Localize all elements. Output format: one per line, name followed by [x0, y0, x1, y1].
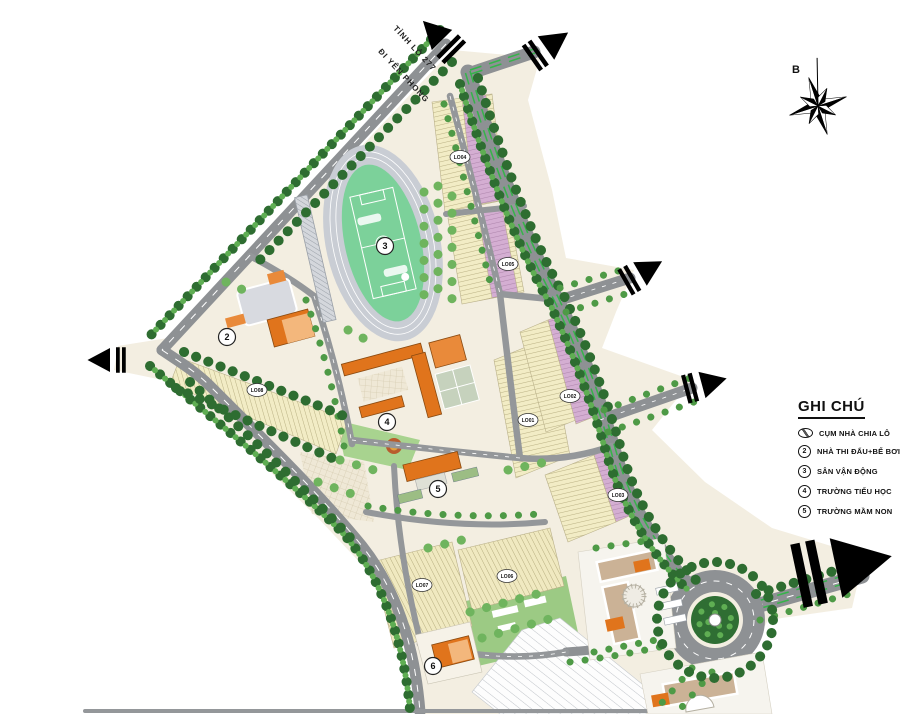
- legend-item-primary-school: 4 TRƯỜNG TIỂU HỌC: [798, 485, 906, 498]
- compass-rose: [775, 53, 856, 144]
- svg-text:LO08: LO08: [251, 388, 264, 394]
- facility-marker-6: 6: [425, 658, 442, 675]
- site-plan-page: LO04 LO05 LO08 LO01 LO02 LO03 LO07 LO06 …: [0, 0, 906, 714]
- svg-text:LO07: LO07: [416, 583, 429, 589]
- legend-symbol-2: 2: [798, 445, 811, 458]
- svg-text:LO03: LO03: [612, 493, 625, 499]
- legend-item-sports-hall: 2 NHÀ THI ĐẤU+BỂ BƠI: [798, 445, 906, 458]
- lot-label: LO06: [497, 570, 517, 583]
- lot-label: LO08: [247, 384, 267, 397]
- legend-symbol-3: 3: [798, 465, 811, 478]
- facility-marker-5: 5: [430, 481, 447, 498]
- svg-text:LO06: LO06: [501, 574, 514, 580]
- svg-text:3: 3: [382, 241, 387, 251]
- north-label: B: [792, 64, 800, 76]
- lot-oval-symbol: [798, 428, 813, 438]
- svg-text:6: 6: [430, 661, 435, 671]
- legend-item-kindergarten: 5 TRƯỜNG MẦM NON: [798, 505, 906, 518]
- legend: GHI CHÚ CỤM NHÀ CHIA LÔ 2 NHÀ THI ĐẤU+BỂ…: [790, 398, 906, 525]
- site-plan-svg: LO04 LO05 LO08 LO01 LO02 LO03 LO07 LO06 …: [0, 0, 906, 714]
- lot-label: LO07: [412, 579, 432, 592]
- svg-text:4: 4: [384, 417, 389, 427]
- svg-text:LO01: LO01: [522, 418, 535, 424]
- legend-symbol-4: 4: [798, 485, 811, 498]
- legend-item-stadium: 3 SÂN VẬN ĐỘNG: [798, 465, 906, 478]
- svg-text:LO05: LO05: [502, 262, 515, 268]
- lot-label: LO03: [608, 489, 628, 502]
- legend-item-lots: CỤM NHÀ CHIA LÔ: [798, 428, 906, 438]
- legend-symbol-5: 5: [798, 505, 811, 518]
- lot-label: LO02: [560, 390, 580, 403]
- svg-text:5: 5: [435, 484, 440, 494]
- facility-marker-2: 2: [219, 329, 236, 346]
- svg-text:LO02: LO02: [564, 394, 577, 400]
- facility-marker-4: 4: [379, 414, 396, 431]
- lot-label: LO05: [498, 258, 518, 271]
- facility-marker-3: 3: [377, 238, 394, 255]
- svg-text:2: 2: [224, 332, 229, 342]
- lot-label: LO04: [450, 151, 470, 164]
- svg-text:LO04: LO04: [454, 155, 467, 161]
- lot-label: LO01: [518, 414, 538, 427]
- legend-title: GHI CHÚ: [798, 398, 865, 419]
